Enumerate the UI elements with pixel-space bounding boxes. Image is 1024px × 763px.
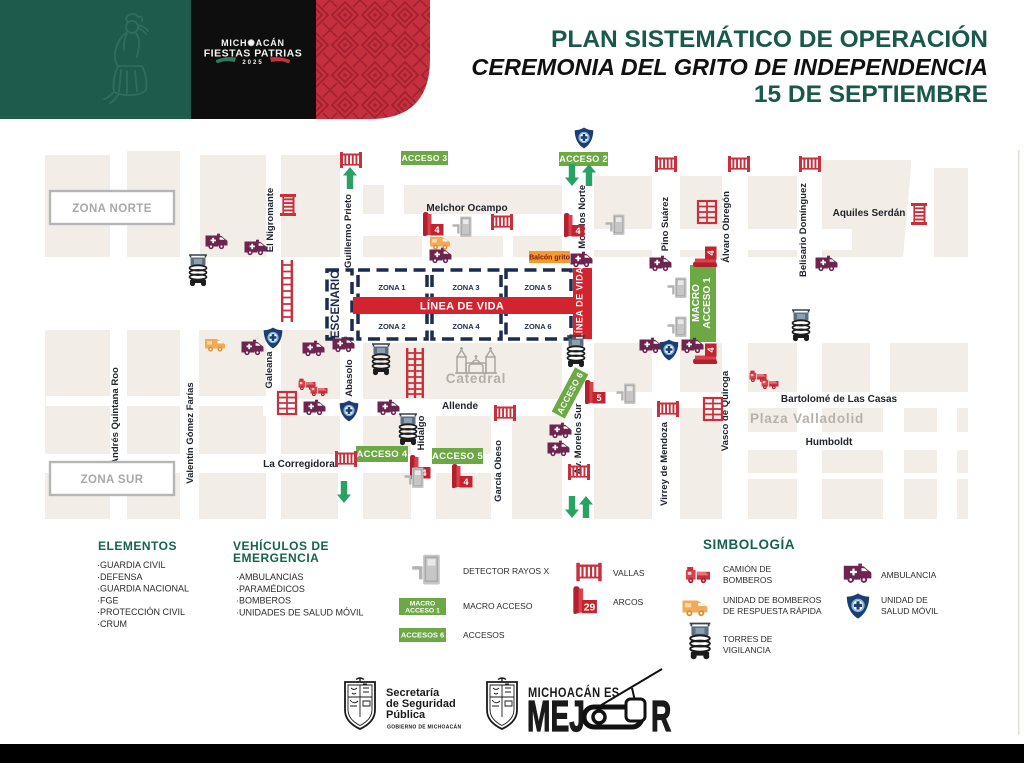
svg-text:FIESTAS PATRIAS: FIESTAS PATRIAS [204,48,303,60]
svg-text:Aquiles Serdán: Aquiles Serdán [833,208,906,219]
svg-text:4: 4 [575,226,580,236]
svg-text:ZONA 4: ZONA 4 [452,322,480,331]
svg-text:PLAN SISTEMÁTICO DE OPERACIÓN: PLAN SISTEMÁTICO DE OPERACIÓN [551,25,988,53]
svg-text:CAMIÓN DE: CAMIÓN DE [723,564,772,574]
svg-text:UNIDAD DE: UNIDAD DE [881,595,928,605]
svg-text:Andrés Quintana Roo: Andrés Quintana Roo [110,367,121,465]
svg-text:Melchor Ocampo: Melchor Ocampo [426,203,507,214]
svg-text:ACCESO 2: ACCESO 2 [559,154,607,164]
svg-text:ZONA 6: ZONA 6 [524,322,551,331]
svg-text:ACCESO 5: ACCESO 5 [432,451,483,462]
svg-text:Hidalgo: Hidalgo [416,415,427,450]
svg-text:Pino Suárez: Pino Suárez [660,197,671,252]
svg-text:ZONA SUR: ZONA SUR [81,474,144,486]
svg-text:ZONA 1: ZONA 1 [378,283,405,292]
svg-text:Valentín Gómez Farías: Valentín Gómez Farías [185,382,196,483]
svg-text:ACCESO 3: ACCESO 3 [402,153,448,163]
svg-text:4: 4 [463,477,468,487]
svg-text:TORRES DE: TORRES DE [723,634,773,644]
svg-text:15 DE SEPTIEMBRE: 15 DE SEPTIEMBRE [754,81,988,108]
svg-text:·PARAMÉDICOS: ·PARAMÉDICOS [236,584,305,594]
svg-text:Balcón grito: Balcón grito [529,255,570,262]
svg-text:·PROTECCIÓN CIVIL: ·PROTECCIÓN CIVIL [97,607,185,617]
svg-text:Allende: Allende [442,401,479,412]
svg-text:4: 4 [434,225,439,235]
svg-text:MACRO ACCESO: MACRO ACCESO [463,601,533,611]
svg-text:Guillermo Prieto: Guillermo Prieto [343,194,354,268]
svg-text:MEJ: MEJ [527,692,585,741]
svg-text:ZONA NORTE: ZONA NORTE [72,203,152,215]
svg-text:·FGE: ·FGE [97,595,119,605]
svg-text:ESCENARIO: ESCENARIO [330,270,342,338]
svg-text:Abasolo: Abasolo [344,359,355,397]
svg-text:LÍNEA DE VIDA: LÍNEA DE VIDA [420,300,504,313]
svg-text:Álvaro Obregón: Álvaro Obregón [721,191,732,263]
svg-text:BOMBEROS: BOMBEROS [723,575,772,585]
svg-text:ACCESOS 6: ACCESOS 6 [401,631,444,640]
svg-text:EMERGENCIA: EMERGENCIA [233,551,319,565]
svg-text:LÍNEA DE VIDA: LÍNEA DE VIDA [575,267,585,339]
svg-text:Humboldt: Humboldt [806,437,853,448]
svg-text:VALLAS: VALLAS [613,568,645,578]
svg-text:Bartolomé de Las Casas: Bartolomé de Las Casas [781,394,898,405]
svg-text:·AMBULANCIAS: ·AMBULANCIAS [236,572,304,582]
svg-text:VIGILANCIA: VIGILANCIA [723,645,771,655]
svg-text:·GUARDIA CIVIL: ·GUARDIA CIVIL [97,560,166,570]
svg-text:·BOMBEROS: ·BOMBEROS [236,596,291,606]
svg-text:SIMBOLOGÍA: SIMBOLOGÍA [703,537,795,552]
svg-text:GOBIERNO DE MICHOACÁN: GOBIERNO DE MICHOACÁN [387,724,461,731]
svg-text:29: 29 [584,602,596,613]
svg-text:ACCESO 1: ACCESO 1 [702,277,713,329]
svg-text:·UNIDADES DE SALUD MÓVIL: ·UNIDADES DE SALUD MÓVIL [236,607,364,617]
svg-text:·GUARDIA NACIONAL: ·GUARDIA NACIONAL [97,584,189,594]
svg-text:ACCESO 4: ACCESO 4 [357,449,408,460]
svg-text:SALUD MÓVIL: SALUD MÓVIL [881,606,938,616]
svg-text:CEREMONIA DEL GRITO DE INDEPEN: CEREMONIA DEL GRITO DE INDEPENDENCIA [471,54,988,80]
svg-text:Av. Morelos Sur: Av. Morelos Sur [573,403,584,475]
svg-text:MACRO: MACRO [691,284,702,322]
svg-text:El Nigromante: El Nigromante [265,188,276,252]
svg-text:Pública: Pública [386,709,426,721]
svg-text:R: R [651,692,671,741]
svg-text:·CRUM: ·CRUM [97,619,127,629]
svg-text:Plaza Valladolid: Plaza Valladolid [750,411,864,426]
svg-text:MACRO: MACRO [410,601,436,608]
svg-text:García Obeso: García Obeso [493,440,504,502]
svg-text:La Corregidora: La Corregidora [263,459,335,470]
svg-text:2025: 2025 [242,60,263,66]
svg-text:Virrey de Mendoza: Virrey de Mendoza [659,421,670,505]
svg-text:ACCESOS: ACCESOS [463,630,505,640]
svg-text:4: 4 [706,250,716,255]
svg-text:4: 4 [706,347,716,352]
svg-text:ELEMENTOS: ELEMENTOS [98,539,177,553]
svg-text:UNIDAD DE BOMBEROS: UNIDAD DE BOMBEROS [723,595,822,605]
svg-text:·DEFENSA: ·DEFENSA [97,572,143,582]
svg-text:Belisario Domínguez: Belisario Domínguez [798,183,809,277]
svg-text:DE RESPUESTA RÁPIDA: DE RESPUESTA RÁPIDA [723,606,822,616]
svg-text:ACCESO 1: ACCESO 1 [405,608,440,615]
svg-text:ZONA 3: ZONA 3 [452,283,479,292]
svg-text:ZONA 5: ZONA 5 [524,283,551,292]
svg-text:DETECTOR RAYOS X: DETECTOR RAYOS X [463,566,549,576]
svg-text:AMBULANCIA: AMBULANCIA [881,570,937,580]
svg-text:5: 5 [596,393,601,403]
svg-text:MICH✺ACÁN: MICH✺ACÁN [221,38,285,48]
svg-text:Galeana: Galeana [264,351,275,389]
svg-text:ARCOS: ARCOS [613,597,644,607]
svg-text:ZONA 2: ZONA 2 [378,322,405,331]
